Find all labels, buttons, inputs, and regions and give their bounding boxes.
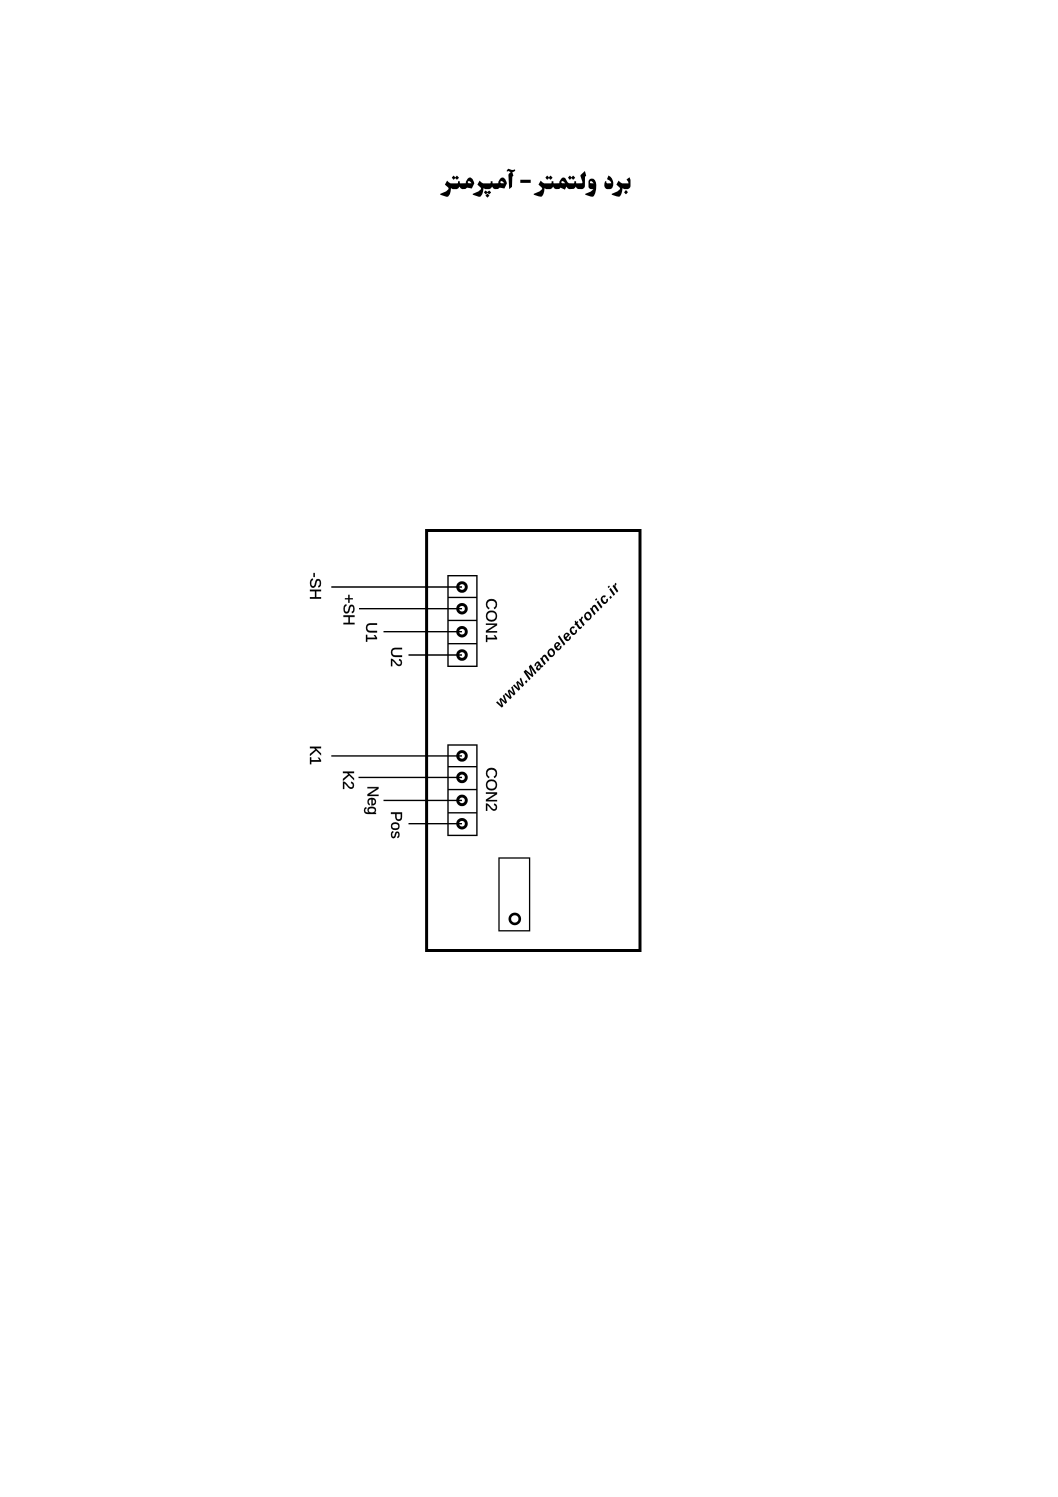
svg-text:CON1: CON1 bbox=[482, 598, 499, 643]
svg-text:Neg: Neg bbox=[364, 786, 381, 815]
svg-text:CON2: CON2 bbox=[482, 767, 499, 812]
svg-text:www.Manoelectronic.ir: www.Manoelectronic.ir bbox=[493, 579, 625, 711]
svg-text:K2: K2 bbox=[339, 770, 356, 790]
svg-text:U1: U1 bbox=[362, 622, 379, 643]
svg-text:+SH: +SH bbox=[339, 594, 356, 626]
svg-text:K1: K1 bbox=[306, 745, 323, 765]
svg-text:-SH: -SH bbox=[306, 572, 323, 600]
svg-text:U2: U2 bbox=[387, 647, 404, 668]
svg-text:Pos: Pos bbox=[387, 811, 404, 839]
